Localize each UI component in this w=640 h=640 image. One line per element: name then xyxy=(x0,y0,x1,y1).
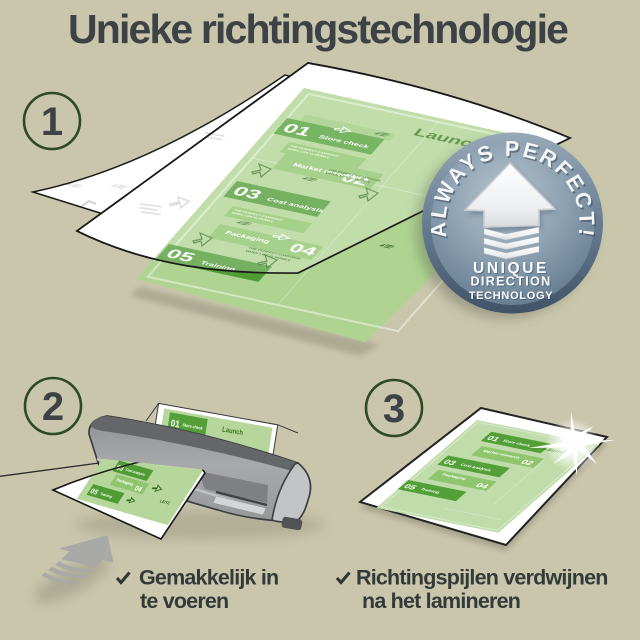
svg-text:3: 3 xyxy=(383,387,405,431)
svg-text:2: 2 xyxy=(42,385,64,429)
svg-text:Unieke richtingstechnologie: Unieke richtingstechnologie xyxy=(68,6,568,52)
svg-text:na het lamineren: na het lamineren xyxy=(362,589,520,613)
svg-text:te voeren: te voeren xyxy=(140,589,228,613)
svg-text:TECHNOLOGY: TECHNOLOGY xyxy=(469,290,554,302)
svg-text:Gemakkelijk in: Gemakkelijk in xyxy=(139,566,278,590)
svg-text:Richtingspijlen verdwijnen: Richtingspijlen verdwijnen xyxy=(356,566,608,590)
svg-text:1: 1 xyxy=(41,100,63,144)
svg-text:DIRECTION: DIRECTION xyxy=(471,275,552,289)
